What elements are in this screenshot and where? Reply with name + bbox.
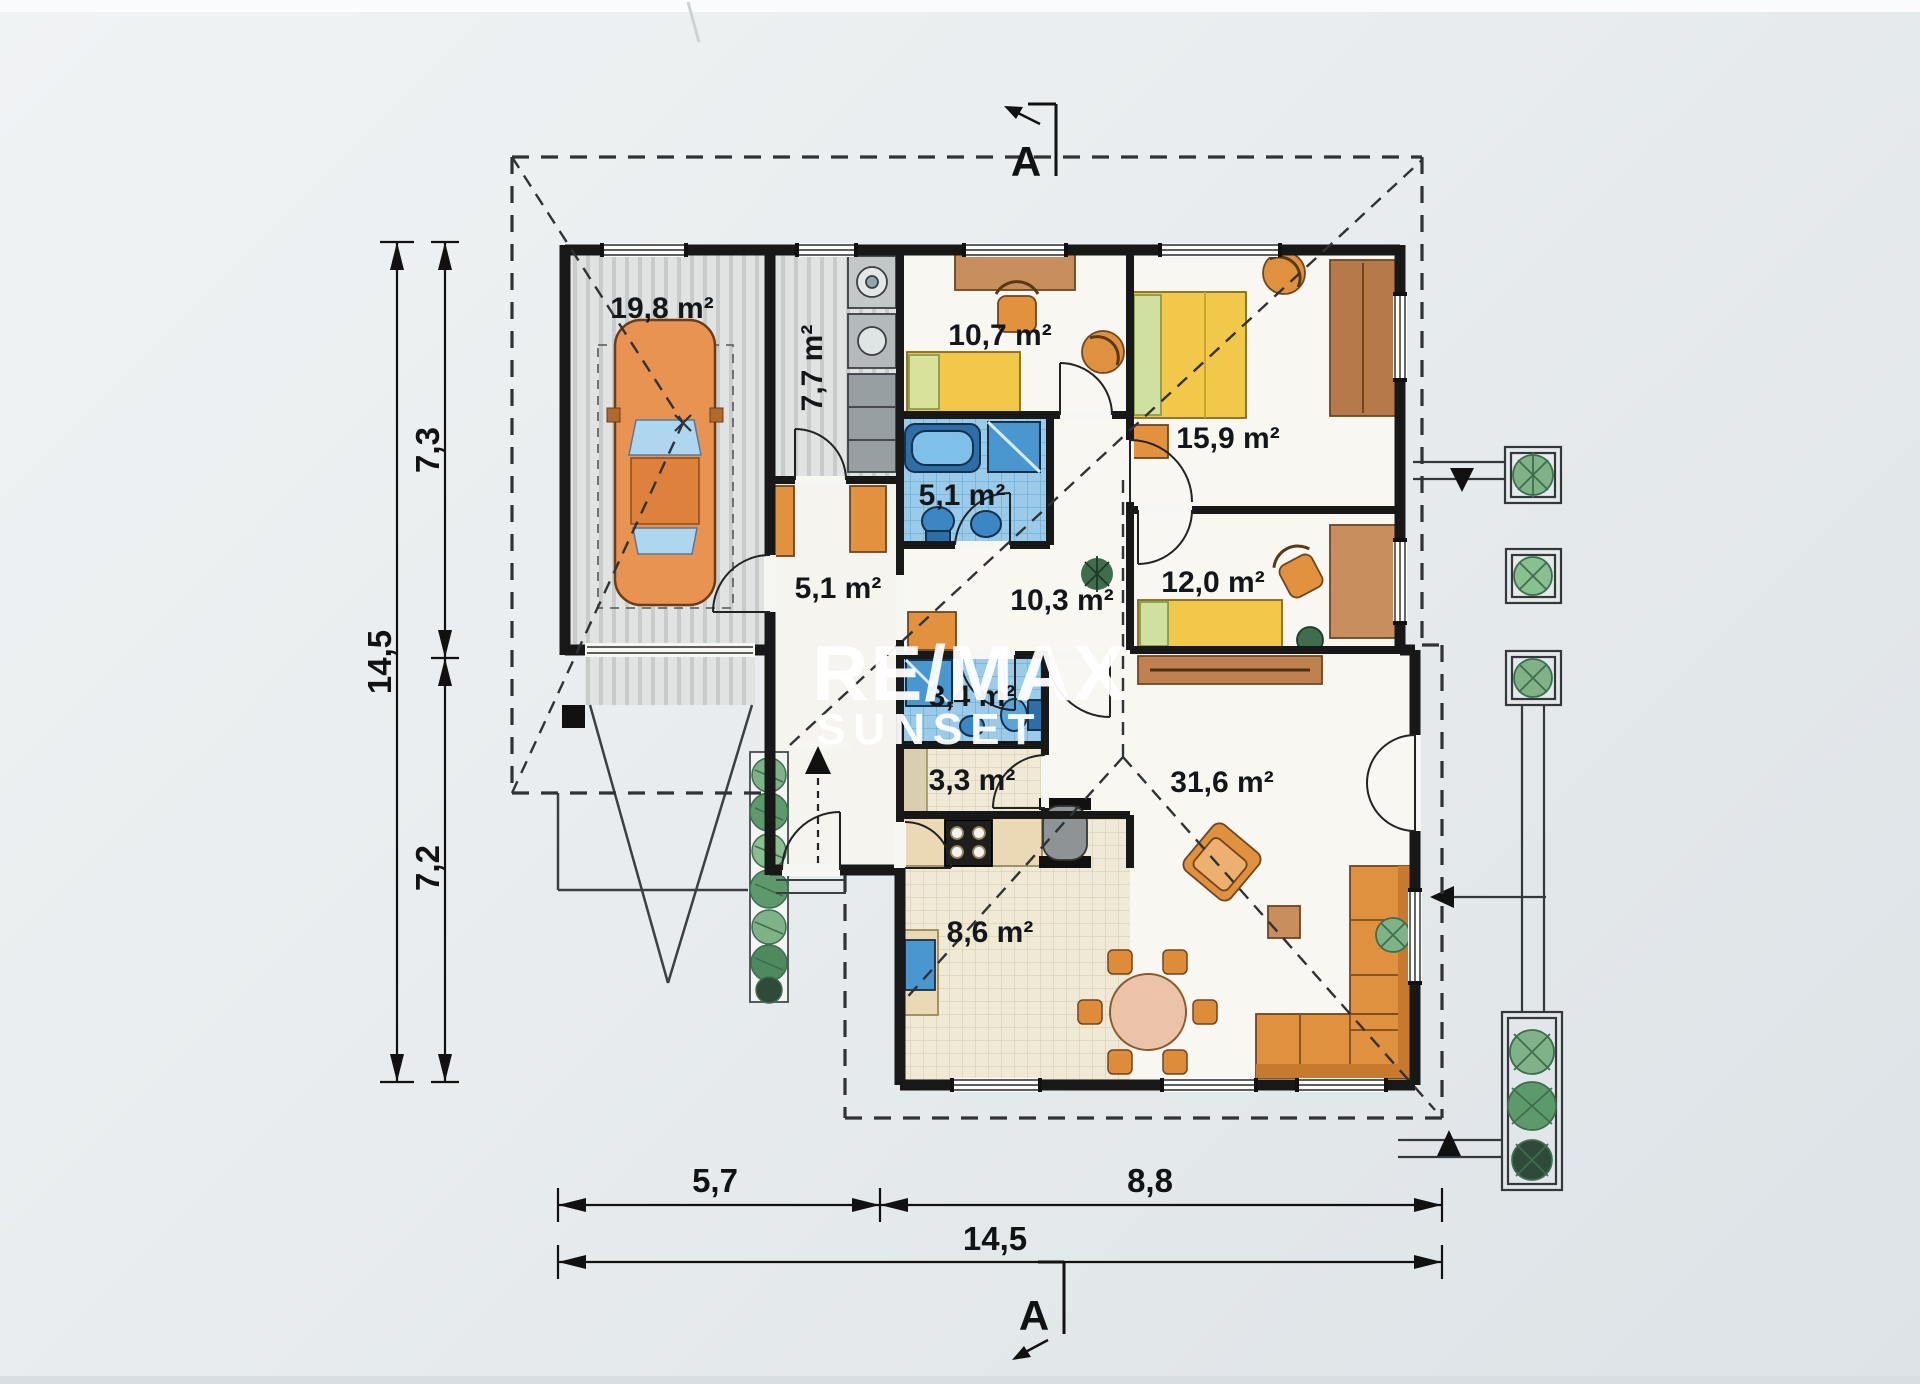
dim-left-upper: 7,3 bbox=[409, 427, 446, 473]
dim-left-lower: 7,2 bbox=[409, 845, 446, 891]
hall-area-label: 10,3 m² bbox=[1010, 584, 1113, 617]
section-marker-bottom: A bbox=[1012, 1262, 1064, 1360]
study-area-label: 12,0 m² bbox=[1161, 566, 1264, 599]
window-north-child bbox=[962, 243, 1068, 257]
garage-apron bbox=[585, 650, 755, 705]
window-east-study bbox=[1393, 538, 1407, 625]
dim-bottom-total: 14,5 bbox=[963, 1220, 1027, 1257]
scanned-floor-plan-page: 19,8 m² 7,7 m² 10,7 m² 15,9 m² 5,1 m² 5,… bbox=[0, 0, 1920, 1384]
pantry-shelf bbox=[903, 748, 927, 812]
utility-area-label: 7,7 m² bbox=[796, 325, 829, 412]
watermark-sunset: SUNSET bbox=[816, 705, 1042, 754]
living-room-area-label: 31,6 m² bbox=[1170, 766, 1273, 799]
window-north-utility bbox=[795, 243, 858, 257]
entry-hall-area-label: 5,1 m² bbox=[795, 572, 882, 605]
window-south-kitchen bbox=[950, 1078, 1042, 1092]
section-marker-top: A bbox=[1004, 104, 1056, 185]
driveway bbox=[558, 705, 752, 983]
garage-area-label: 19,8 m² bbox=[610, 292, 713, 325]
section-label-bottom: A bbox=[1019, 1292, 1049, 1339]
window-north-garage bbox=[600, 243, 688, 257]
dim-bottom-right: 8,8 bbox=[1127, 1162, 1173, 1199]
pantry-area-label: 3,3 m² bbox=[929, 764, 1016, 797]
dim-left-total: 14,5 bbox=[361, 630, 398, 694]
window-east-living bbox=[1408, 888, 1422, 985]
watermark-remax: RE/MAX bbox=[812, 629, 1127, 717]
window-south-living-2 bbox=[1295, 1078, 1388, 1092]
porch-pier bbox=[562, 705, 585, 728]
floor-plan-drawing: 19,8 m² 7,7 m² 10,7 m² 15,9 m² 5,1 m² 5,… bbox=[0, 0, 1920, 1384]
section-label-top: A bbox=[1011, 138, 1041, 185]
window-north-bedroom bbox=[1158, 243, 1282, 257]
kitchen-area-label: 8,6 m² bbox=[947, 916, 1034, 949]
dim-bottom-left: 5,7 bbox=[692, 1162, 738, 1199]
pergola bbox=[1398, 447, 1562, 1190]
utility-appliances bbox=[848, 256, 896, 472]
bathroom-area-label: 5,1 m² bbox=[919, 479, 1006, 512]
child-room-area-label: 10,7 m² bbox=[948, 319, 1051, 352]
bedroom-area-label: 15,9 m² bbox=[1176, 422, 1279, 455]
window-east-bedroom bbox=[1393, 292, 1407, 382]
window-south-living-1 bbox=[1160, 1078, 1258, 1092]
